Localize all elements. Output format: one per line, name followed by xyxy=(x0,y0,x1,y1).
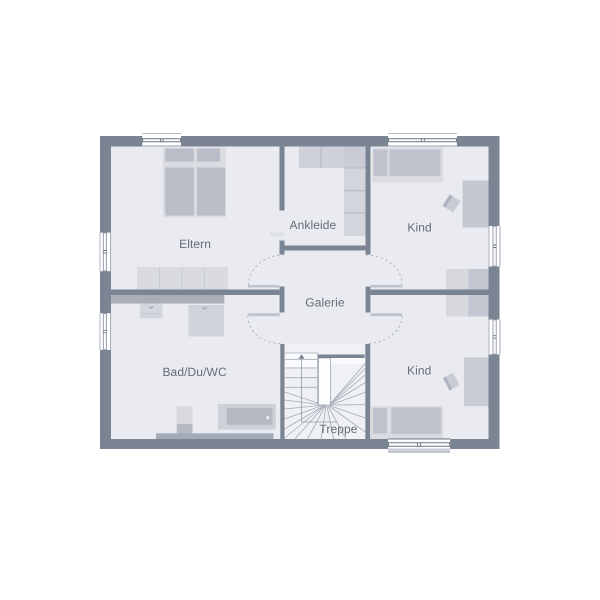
svg-text:Galerie: Galerie xyxy=(305,296,345,310)
svg-text:Kind: Kind xyxy=(407,220,431,234)
svg-text:Ankleide: Ankleide xyxy=(289,218,336,232)
svg-text:Bad/Du/WC: Bad/Du/WC xyxy=(162,365,226,379)
svg-text:Kind: Kind xyxy=(407,363,431,377)
svg-text:Treppe: Treppe xyxy=(319,422,357,436)
svg-text:Eltern: Eltern xyxy=(179,237,211,251)
